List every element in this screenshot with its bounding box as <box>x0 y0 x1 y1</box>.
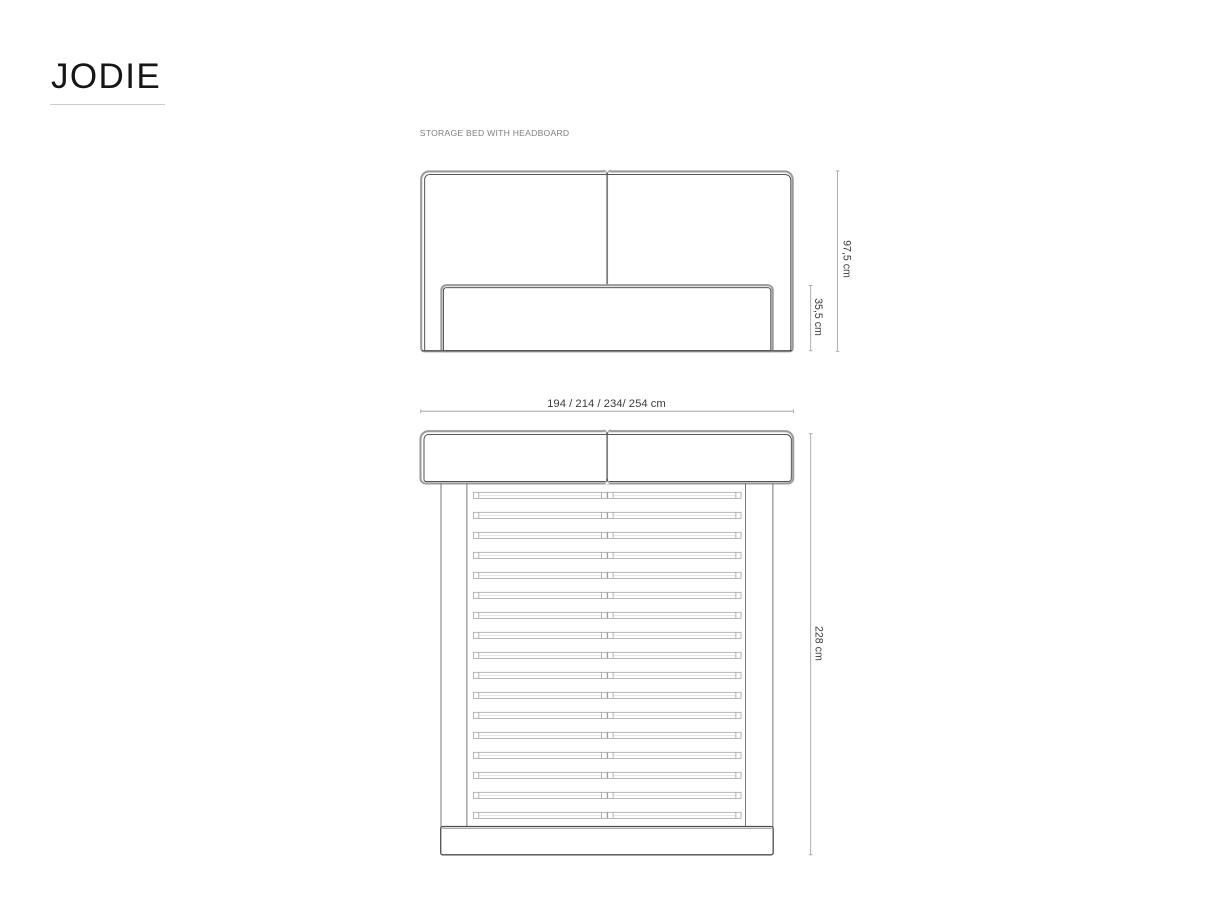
svg-text:STORAGE BED WITH HEADBOARD: STORAGE BED WITH HEADBOARD <box>420 128 570 138</box>
svg-text:228 cm: 228 cm <box>812 626 824 661</box>
svg-text:194 / 214 / 234/ 254 cm: 194 / 214 / 234/ 254 cm <box>547 398 666 410</box>
svg-text:35,5 cm: 35,5 cm <box>812 298 824 336</box>
svg-text:97,5 cm: 97,5 cm <box>840 240 852 278</box>
